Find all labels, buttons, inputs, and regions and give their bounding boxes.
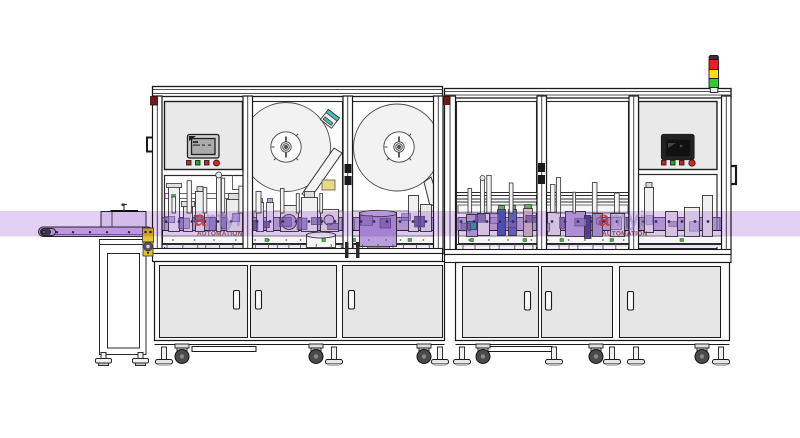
svg-text:AUTOMATION: AUTOMATION: [197, 231, 243, 238]
svg-text:myi: myi: [205, 208, 241, 231]
svg-text:myi: myi: [609, 208, 645, 231]
svg-text:AUTOMATION: AUTOMATION: [602, 231, 648, 238]
